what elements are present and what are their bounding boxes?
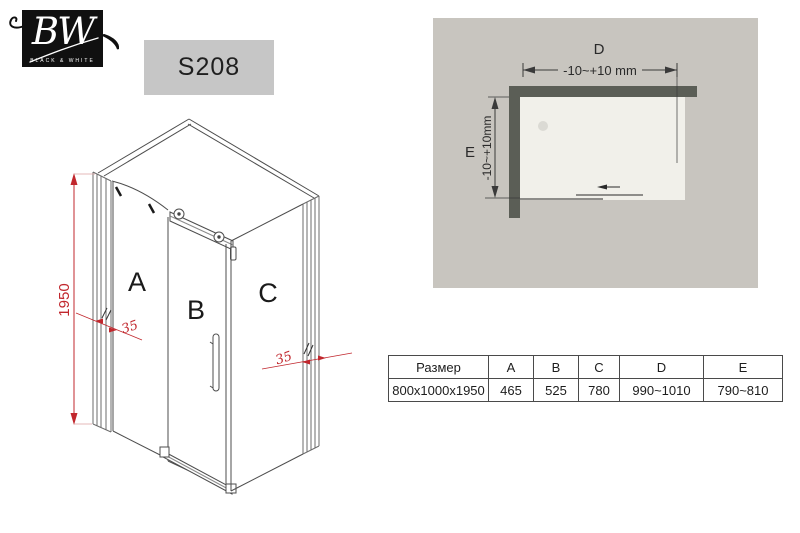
header-b: B <box>534 356 579 379</box>
isometric-drawing: A B C 1950 35 35 <box>0 100 380 533</box>
cell-d: 990~1010 <box>620 379 704 402</box>
panel-a-label: A <box>128 267 146 297</box>
bottom-rail <box>160 447 236 494</box>
cell-e: 790~810 <box>704 379 783 402</box>
plan-view-drawing: D -10~+10 mm E -10~+10mm <box>433 18 758 288</box>
plan-depth-label: E <box>465 144 475 161</box>
header-e: E <box>704 356 783 379</box>
wall-offset-left-label: 35 <box>120 318 140 337</box>
cell-a: 465 <box>489 379 534 402</box>
wall-offset-right-label: 35 <box>274 349 294 368</box>
plan-shower-tray <box>520 97 685 200</box>
panel-c-label: C <box>258 278 278 308</box>
brand-logo: BW BLACK & WHITE <box>0 0 130 80</box>
cell-size: 800x1000x1950 <box>389 379 489 402</box>
size-table-data-row: 800x1000x1950 465 525 780 990~1010 790~8… <box>389 379 783 402</box>
plan-depth-tolerance: -10~+10mm <box>480 116 494 181</box>
door-handle-icon <box>210 334 219 391</box>
model-code: S208 <box>178 53 240 82</box>
header-c: C <box>579 356 620 379</box>
header-size: Размер <box>389 356 489 379</box>
cell-c: 780 <box>579 379 620 402</box>
enclosure-outline <box>93 119 319 494</box>
height-dim-label: 1950 <box>56 283 73 316</box>
plan-view-panel: D -10~+10 mm E -10~+10mm <box>433 18 758 288</box>
logo-swash-icon <box>0 0 130 80</box>
size-table: Размер A B C D E 800x1000x1950 465 525 7… <box>388 355 783 402</box>
right-wall-profile <box>303 196 319 454</box>
header-d: D <box>620 356 704 379</box>
cell-b: 525 <box>534 379 579 402</box>
plan-width-tolerance: -10~+10 mm <box>563 63 637 78</box>
drain-icon <box>538 121 548 131</box>
size-table-header-row: Размер A B C D E <box>389 356 783 379</box>
clamp-icon <box>116 187 154 213</box>
height-dimension: 1950 <box>56 173 95 425</box>
panel-b-label: B <box>187 295 205 325</box>
panel-c-glass <box>231 204 303 491</box>
header-a: A <box>489 356 534 379</box>
plan-top-wall <box>509 86 697 97</box>
plan-width-label: D <box>594 41 605 58</box>
panel-a-glass <box>112 181 168 459</box>
left-wall-profile <box>93 172 111 432</box>
model-badge: S208 <box>144 40 274 95</box>
wall-offset-left-dimension: 35 <box>76 308 142 340</box>
